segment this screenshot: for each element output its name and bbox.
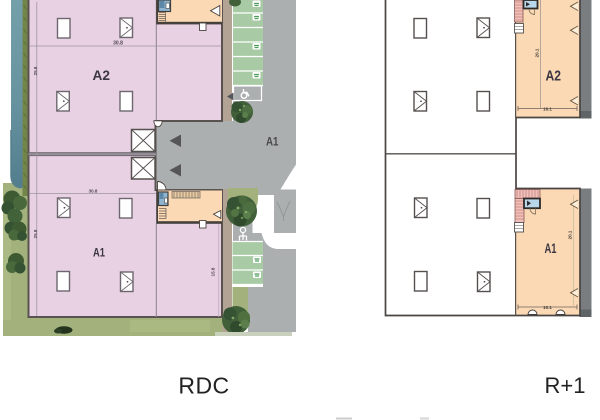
svg-text:15.8: 15.8 [211,267,216,276]
svg-text:R+1: R+1 [545,373,586,398]
svg-text:30.8: 30.8 [113,41,123,47]
svg-text:25.8: 25.8 [33,229,38,238]
svg-text:A1: A1 [93,248,105,260]
svg-text:RDC: RDC [178,373,229,399]
svg-text:20.1: 20.1 [568,230,573,239]
svg-text:A1: A1 [266,137,279,149]
svg-text:25.8: 25.8 [33,66,38,75]
svg-text:A1: A1 [545,241,557,256]
svg-text:10.1: 10.1 [543,305,552,310]
svg-text:30.8: 30.8 [89,188,98,193]
svg-text:16.1: 16.1 [543,107,552,112]
svg-text:A2: A2 [93,67,111,83]
svg-text:A2: A2 [546,68,562,85]
svg-text:20.1: 20.1 [535,48,540,57]
